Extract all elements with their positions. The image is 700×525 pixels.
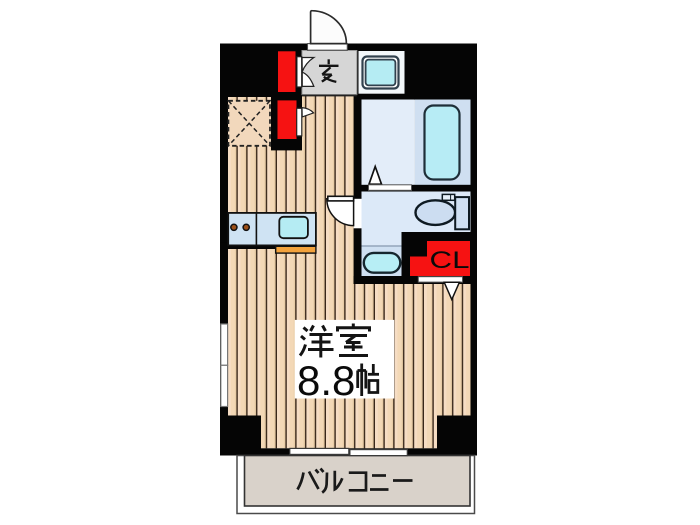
svg-text:CL: CL [430, 247, 470, 274]
svg-text:8.8: 8.8 [297, 357, 355, 404]
